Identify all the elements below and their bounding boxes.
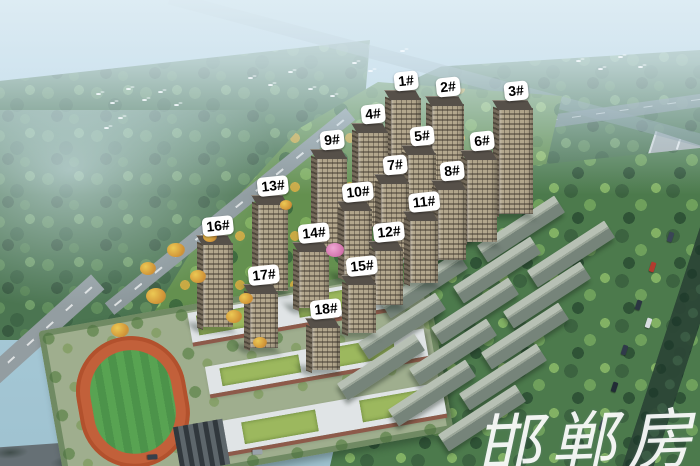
bird-20 xyxy=(400,50,405,52)
green-roof xyxy=(324,337,396,369)
bird-15 xyxy=(368,70,373,72)
green-roof xyxy=(359,390,422,422)
green-roof xyxy=(196,305,263,336)
watermark: 邯郸房产 xyxy=(472,383,700,466)
green-roof xyxy=(296,286,368,318)
green-roof xyxy=(219,355,301,387)
aerial-development-render: 1#2#3#4#5#6#7#8#9#10#11#12#13#14#15#16#1… xyxy=(0,0,700,466)
green-roof xyxy=(241,409,319,444)
sports-field xyxy=(84,344,183,461)
school-parking xyxy=(173,419,230,466)
flowering-tree xyxy=(326,243,344,257)
